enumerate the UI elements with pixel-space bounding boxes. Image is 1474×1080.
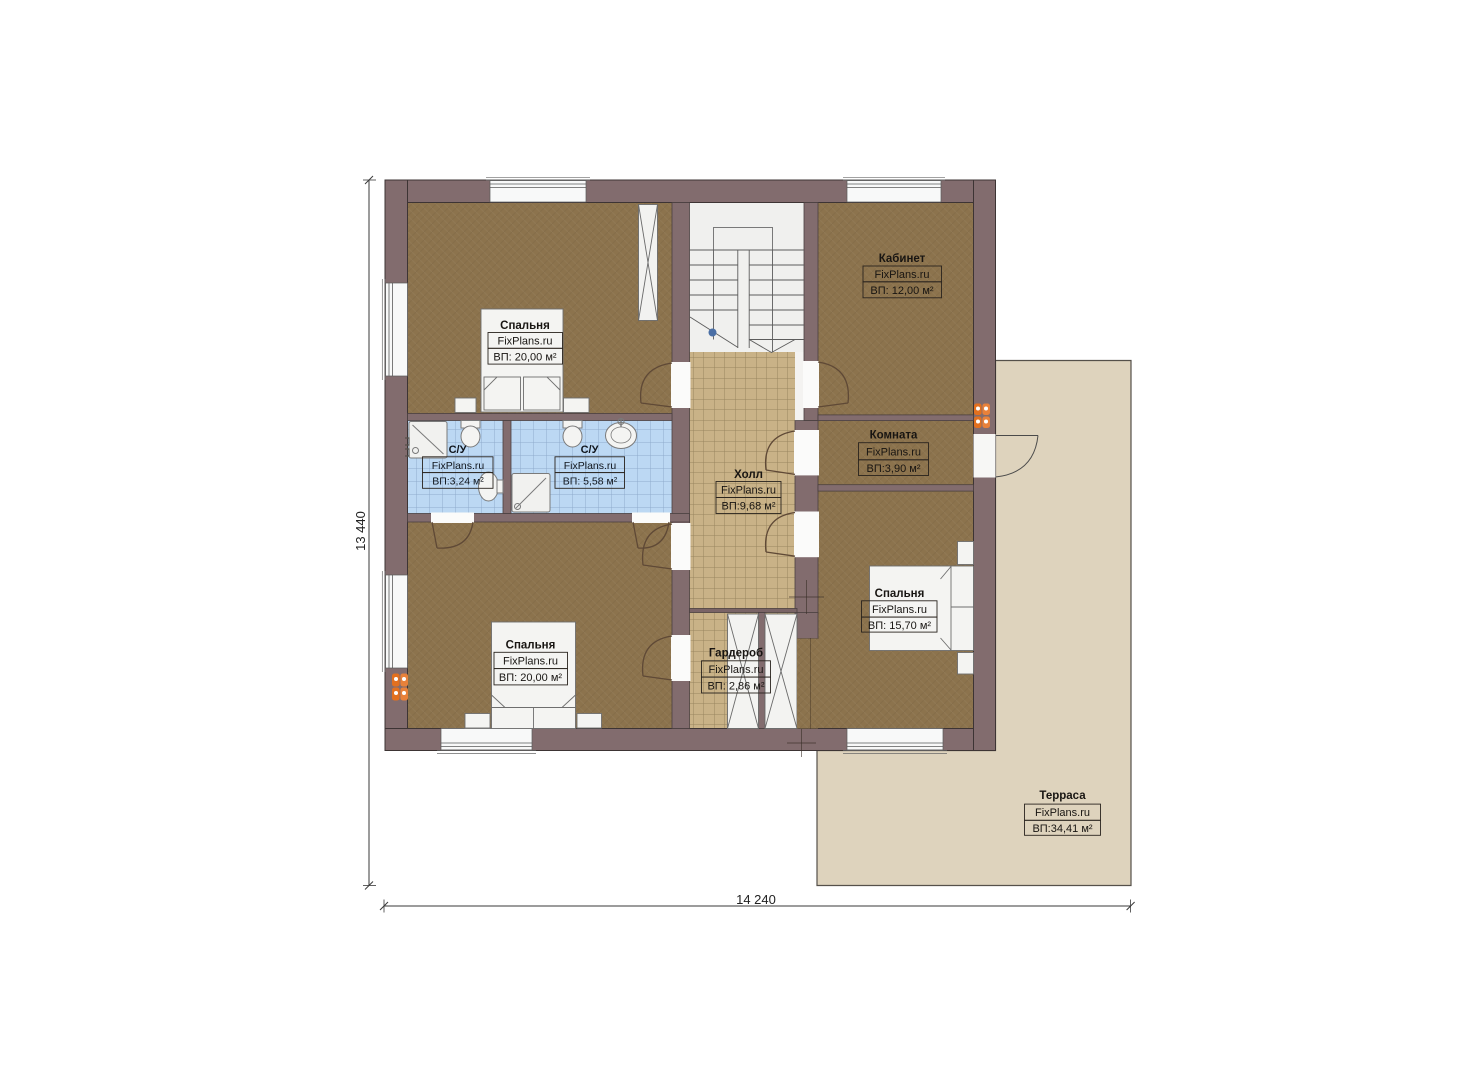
svg-text:14 240: 14 240 — [736, 892, 776, 907]
svg-text:FixPlans.ru: FixPlans.ru — [872, 604, 927, 616]
svg-text:ВП:9,68 м²: ВП:9,68 м² — [722, 501, 776, 513]
svg-text:FixPlans.ru: FixPlans.ru — [1035, 807, 1090, 819]
svg-text:Спальня: Спальня — [875, 588, 925, 600]
svg-text:FixPlans.ru: FixPlans.ru — [503, 656, 558, 668]
svg-text:ВП: 20,00 м²: ВП: 20,00 м² — [493, 352, 557, 364]
svg-text:Спальня: Спальня — [500, 320, 550, 332]
svg-text:ВП: 12,00 м²: ВП: 12,00 м² — [870, 285, 934, 297]
svg-text:FixPlans.ru: FixPlans.ru — [497, 336, 552, 348]
svg-text:FixPlans.ru: FixPlans.ru — [721, 485, 776, 497]
svg-text:13 440: 13 440 — [353, 511, 368, 551]
svg-text:С/У: С/У — [581, 444, 599, 456]
svg-text:FixPlans.ru: FixPlans.ru — [708, 664, 763, 676]
svg-text:FixPlans.ru: FixPlans.ru — [866, 447, 921, 459]
svg-text:FixPlans.ru: FixPlans.ru — [564, 460, 617, 472]
svg-text:FixPlans.ru: FixPlans.ru — [874, 269, 929, 281]
svg-text:ВП: 5,58 м²: ВП: 5,58 м² — [563, 476, 618, 488]
svg-text:Терраса: Терраса — [1039, 790, 1086, 802]
svg-text:FixPlans.ru: FixPlans.ru — [432, 460, 485, 472]
svg-text:ВП: 2,86 м²: ВП: 2,86 м² — [707, 681, 764, 693]
svg-text:Комната: Комната — [870, 430, 918, 442]
svg-text:ВП:34,41 м²: ВП:34,41 м² — [1032, 823, 1092, 835]
svg-text:С/У: С/У — [449, 444, 467, 456]
svg-text:ВП:3,24 м²: ВП:3,24 м² — [432, 476, 484, 488]
svg-text:Гардероб: Гардероб — [709, 648, 763, 660]
svg-text:Холл: Холл — [734, 469, 763, 481]
svg-text:ВП: 15,70 м²: ВП: 15,70 м² — [868, 620, 932, 632]
svg-text:ВП:3,90 м²: ВП:3,90 м² — [867, 463, 921, 475]
svg-text:Спальня: Спальня — [506, 640, 556, 652]
svg-text:Кабинет: Кабинет — [879, 253, 926, 265]
svg-text:ВП: 20,00 м²: ВП: 20,00 м² — [499, 672, 563, 684]
